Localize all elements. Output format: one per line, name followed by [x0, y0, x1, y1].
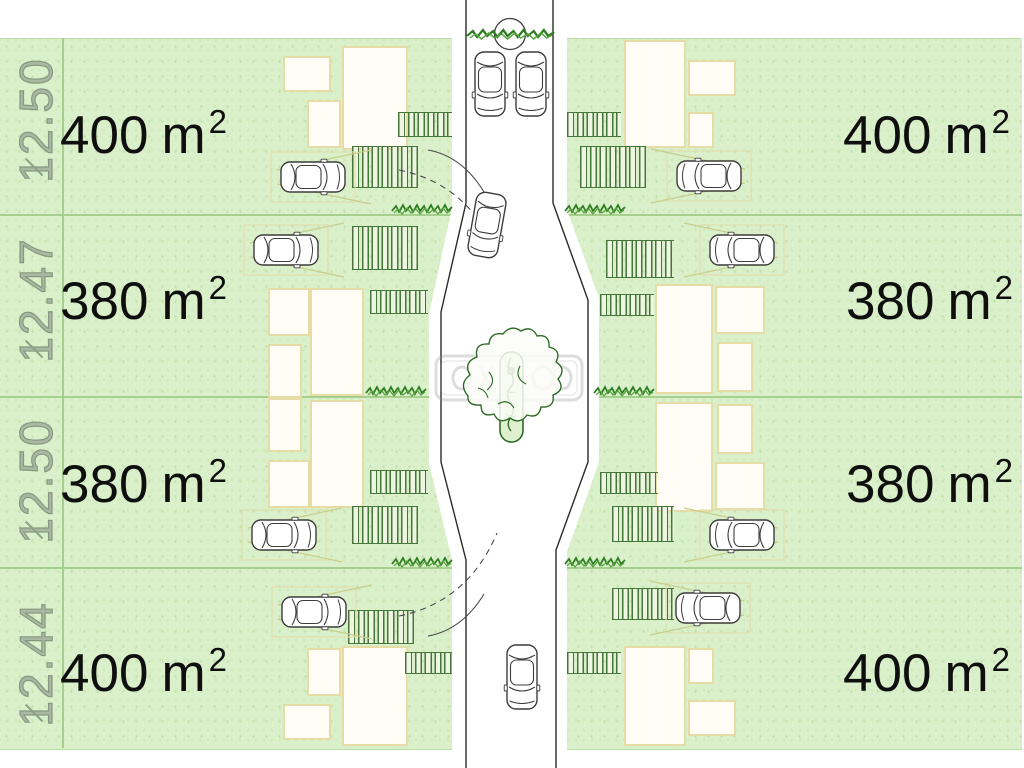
lot-area-label: 380m2: [846, 443, 1013, 513]
car-icon: [710, 232, 774, 268]
hedge-row-icon: [565, 205, 625, 214]
lot-area-label: 380m2: [60, 260, 227, 330]
car-icon: [676, 590, 740, 626]
lot-area-label: 400m2: [843, 94, 1010, 164]
hedge-row-icon: [392, 558, 452, 567]
car-icon: [710, 517, 774, 553]
lot-area-label: 400m2: [60, 94, 227, 164]
dimension-label: 12.47: [10, 215, 62, 385]
lot-area-label: 400m2: [60, 632, 227, 702]
dimension-label: 12.50: [10, 35, 62, 205]
car-icon: [677, 158, 741, 194]
car-icon: [282, 594, 346, 630]
dimension-label: 12.50: [10, 396, 62, 566]
lot-area-label: 400m2: [843, 632, 1010, 702]
car-icon: [254, 232, 318, 268]
car-icon: [252, 517, 316, 553]
lot-area-label: 380m2: [846, 260, 1013, 330]
hedge-row-icon: [594, 387, 654, 396]
car-icon: [504, 645, 540, 709]
car-icon: [472, 52, 508, 116]
lot-area-label: 380m2: [60, 443, 227, 513]
hedge-row-icon: [392, 205, 452, 214]
car-icon: [281, 159, 345, 195]
hedge-row-icon: [366, 387, 426, 396]
car-icon: [513, 52, 549, 116]
dimension-label: 12.44: [10, 579, 62, 749]
site-plan: 400m2 380m2 380m2 400m2 400m2 380m2 380m…: [0, 0, 1024, 768]
hedge-row-icon: [565, 558, 625, 567]
